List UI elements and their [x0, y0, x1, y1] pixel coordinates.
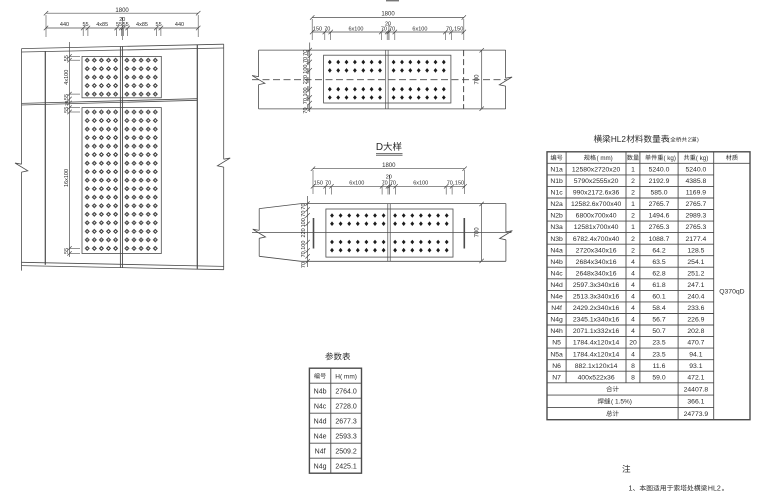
svg-text:2765.7: 2765.7: [649, 201, 670, 208]
svg-text:2: 2: [631, 213, 635, 220]
svg-text:4x85: 4x85: [96, 22, 108, 28]
svg-text:4: 4: [631, 282, 635, 289]
svg-text:2765.3: 2765.3: [649, 224, 670, 231]
svg-text:2728.0: 2728.0: [335, 403, 357, 410]
svg-text:55: 55: [64, 94, 70, 100]
svg-text:(: (: [668, 138, 670, 144]
svg-text:4: 4: [631, 270, 635, 277]
svg-text:20: 20: [386, 175, 392, 181]
svg-text:N3a: N3a: [550, 224, 563, 231]
svg-text:61.8: 61.8: [652, 282, 665, 289]
svg-text:1: 1: [631, 167, 635, 174]
svg-text:11.6: 11.6: [653, 363, 666, 370]
svg-text:1800: 1800: [381, 12, 395, 18]
svg-text:20: 20: [629, 340, 637, 347]
svg-text:N1c: N1c: [551, 190, 564, 197]
svg-text:58.4: 58.4: [652, 305, 665, 312]
svg-text:70: 70: [389, 27, 395, 33]
svg-text:233.6: 233.6: [687, 305, 704, 312]
svg-text:HL2: HL2: [611, 135, 626, 144]
svg-text:2: 2: [688, 138, 691, 144]
svg-text:55: 55: [82, 22, 88, 28]
svg-text:12581x700x40: 12581x700x40: [574, 224, 619, 231]
svg-text:6x100: 6x100: [413, 181, 428, 187]
svg-text:700: 700: [475, 74, 481, 85]
svg-text:2192.9: 2192.9: [649, 178, 670, 185]
svg-text:N4b: N4b: [550, 259, 563, 266]
svg-text:59.0: 59.0: [652, 374, 665, 381]
svg-text:150: 150: [455, 181, 464, 187]
svg-text:50.7: 50.7: [652, 328, 665, 335]
svg-text:N4b: N4b: [314, 388, 327, 395]
svg-text:990x2172.6x36: 990x2172.6x36: [573, 190, 620, 197]
svg-text:Q370qD: Q370qD: [719, 289, 744, 296]
svg-text:2648x340x16: 2648x340x16: [576, 270, 617, 277]
svg-text:N1a: N1a: [550, 167, 563, 174]
svg-text:1: 1: [631, 201, 635, 208]
svg-text:366.1: 366.1: [687, 399, 704, 406]
svg-text:100,70: 100,70: [303, 57, 309, 74]
svg-text:2071.1x332x16: 2071.1x332x16: [573, 328, 620, 335]
svg-text:N4d: N4d: [550, 282, 563, 289]
svg-text:55: 55: [64, 55, 70, 61]
svg-text:55: 55: [123, 22, 129, 28]
svg-text:23.5: 23.5: [652, 351, 665, 358]
svg-text:16x100: 16x100: [64, 169, 70, 187]
svg-text:251.2: 251.2: [687, 270, 704, 277]
svg-text:2177.4: 2177.4: [686, 236, 707, 243]
svg-text:6x100: 6x100: [349, 27, 364, 33]
svg-text:400x522x36: 400x522x36: [578, 374, 615, 381]
svg-text:70: 70: [324, 27, 330, 33]
svg-text:128.5: 128.5: [687, 247, 704, 254]
svg-text:24773.9: 24773.9: [684, 411, 709, 418]
svg-text:HL2: HL2: [708, 486, 721, 493]
svg-text:55: 55: [116, 22, 122, 28]
svg-text:55: 55: [64, 248, 70, 254]
svg-text:64.2: 64.2: [652, 247, 665, 254]
svg-text:6800x700x40: 6800x700x40: [576, 213, 617, 220]
svg-text:2720x340x16: 2720x340x16: [576, 247, 617, 254]
svg-text:N5: N5: [552, 340, 561, 347]
svg-text:( mm): ( mm): [597, 155, 613, 162]
svg-text:8: 8: [631, 363, 635, 370]
svg-text:1784.4x120x14: 1784.4x120x14: [573, 351, 620, 358]
svg-text:70: 70: [325, 181, 331, 187]
svg-text:N4d: N4d: [314, 418, 327, 425]
svg-text:1: 1: [629, 484, 633, 493]
svg-text:1800: 1800: [115, 8, 129, 14]
svg-text:5240.0: 5240.0: [649, 167, 670, 174]
svg-text:2765.7: 2765.7: [686, 201, 707, 208]
svg-text:247.1: 247.1: [687, 282, 704, 289]
svg-text:4x85: 4x85: [136, 22, 148, 28]
svg-text:1169.9: 1169.9: [686, 190, 707, 197]
svg-text:882.1x120x14: 882.1x120x14: [575, 363, 618, 370]
svg-text:63.5: 63.5: [652, 259, 665, 266]
svg-text:70: 70: [301, 203, 307, 209]
svg-text:6x100: 6x100: [412, 27, 427, 33]
svg-text:700: 700: [474, 227, 480, 238]
svg-text:N7: N7: [552, 374, 561, 381]
svg-text:6x100: 6x100: [349, 181, 364, 187]
svg-text:2: 2: [631, 247, 635, 254]
svg-text:100,70: 100,70: [301, 211, 307, 228]
svg-text:20: 20: [119, 17, 125, 23]
svg-text:2: 2: [631, 236, 635, 243]
svg-text:N3b: N3b: [550, 236, 563, 243]
svg-text:93.1: 93.1: [689, 363, 702, 370]
svg-text:2684x340x16: 2684x340x16: [576, 259, 617, 266]
svg-text:472.1: 472.1: [687, 374, 704, 381]
svg-text:220: 220: [301, 228, 307, 237]
svg-text:4: 4: [631, 259, 635, 266]
svg-text:440: 440: [60, 22, 69, 28]
svg-text:20: 20: [385, 21, 391, 27]
svg-text:254.1: 254.1: [687, 259, 704, 266]
svg-text:N4g: N4g: [550, 317, 563, 324]
svg-text:55: 55: [64, 107, 70, 113]
svg-text:150: 150: [314, 181, 323, 187]
svg-text:D: D: [376, 142, 383, 153]
svg-text:70: 70: [382, 181, 388, 187]
svg-text:2429.2x340x16: 2429.2x340x16: [573, 305, 620, 312]
svg-text:N4a: N4a: [550, 247, 563, 254]
svg-text:2989.3: 2989.3: [686, 213, 707, 220]
svg-text:6782.4x700x40: 6782.4x700x40: [573, 236, 620, 243]
svg-text:1784.4x120x14: 1784.4x120x14: [573, 340, 620, 347]
svg-text:240.4: 240.4: [687, 294, 704, 301]
svg-text:70: 70: [390, 181, 396, 187]
svg-text:N4h: N4h: [550, 328, 563, 335]
svg-text:70: 70: [381, 27, 387, 33]
svg-text:4x100: 4x100: [64, 70, 70, 85]
svg-text:1494.6: 1494.6: [649, 213, 670, 220]
svg-text:94.1: 94.1: [689, 351, 702, 358]
svg-text:56.7: 56.7: [652, 317, 665, 324]
svg-text:N4f: N4f: [551, 305, 562, 312]
svg-text:20: 20: [64, 100, 69, 106]
svg-text:2: 2: [631, 178, 635, 185]
svg-text:55: 55: [156, 22, 162, 28]
svg-text:2765.3: 2765.3: [686, 224, 707, 231]
svg-text:): ): [697, 138, 699, 144]
svg-text:8: 8: [631, 374, 635, 381]
svg-text:N5a: N5a: [550, 351, 563, 358]
svg-text:150: 150: [454, 27, 463, 33]
svg-text:202.8: 202.8: [687, 328, 704, 335]
svg-text:4: 4: [631, 317, 635, 324]
svg-text:12580x2720x20: 12580x2720x20: [572, 167, 621, 174]
svg-text:220: 220: [303, 75, 309, 84]
svg-text:N4e: N4e: [550, 294, 563, 301]
svg-text:60.1: 60.1: [652, 294, 665, 301]
svg-text:2513.3x340x16: 2513.3x340x16: [573, 294, 620, 301]
svg-text:( 1.5%): ( 1.5%): [611, 399, 632, 406]
svg-text:70: 70: [303, 50, 309, 56]
svg-text:2509.2: 2509.2: [335, 448, 357, 455]
svg-text:585.0: 585.0: [650, 190, 667, 197]
svg-text:H( mm): H( mm): [335, 373, 357, 380]
svg-text:440: 440: [175, 22, 184, 28]
svg-text:1: 1: [631, 224, 635, 231]
svg-text:70: 70: [301, 262, 307, 268]
svg-text:4: 4: [631, 305, 635, 312]
svg-text:150: 150: [313, 27, 322, 33]
svg-text:N6: N6: [552, 363, 561, 370]
svg-text:5240.0: 5240.0: [686, 167, 707, 174]
svg-text:1088.7: 1088.7: [649, 236, 670, 243]
svg-text:62.8: 62.8: [652, 270, 665, 277]
svg-text:( kg): ( kg): [696, 155, 708, 162]
svg-text:12582.6x700x40: 12582.6x700x40: [571, 201, 621, 208]
svg-text:70,100: 70,100: [303, 87, 309, 104]
svg-text:5790x2555x20: 5790x2555x20: [574, 178, 619, 185]
svg-text:2425.1: 2425.1: [335, 463, 357, 470]
svg-text:4: 4: [631, 294, 635, 301]
svg-text:4: 4: [631, 351, 635, 358]
svg-text:N4f: N4f: [315, 448, 326, 455]
svg-text:4: 4: [631, 328, 635, 335]
svg-text:2: 2: [631, 190, 635, 197]
svg-text:N1b: N1b: [550, 178, 563, 185]
svg-text:2677.3: 2677.3: [335, 418, 357, 425]
svg-text:N4c: N4c: [314, 403, 327, 410]
svg-text:N2a: N2a: [550, 201, 563, 208]
svg-text:N4c: N4c: [551, 270, 564, 277]
svg-text:2597.3x340x16: 2597.3x340x16: [573, 282, 620, 289]
svg-text:70: 70: [447, 181, 453, 187]
svg-text:226.9: 226.9: [687, 317, 704, 324]
svg-text:2345.1x340x16: 2345.1x340x16: [573, 317, 620, 324]
svg-text:23.5: 23.5: [652, 340, 665, 347]
svg-text:4385.8: 4385.8: [686, 178, 707, 185]
svg-text:N4g: N4g: [314, 463, 327, 470]
svg-text:N2b: N2b: [550, 213, 563, 220]
svg-text:( kg): ( kg): [664, 155, 676, 162]
svg-text:1800: 1800: [382, 163, 396, 169]
svg-text:2593.3: 2593.3: [335, 433, 357, 440]
svg-text:2764.0: 2764.0: [335, 388, 357, 395]
svg-text:70: 70: [303, 107, 309, 113]
svg-text:24407.8: 24407.8: [684, 386, 709, 393]
svg-text:70,100: 70,100: [301, 241, 307, 258]
svg-text:N4e: N4e: [314, 433, 327, 440]
svg-text:470.7: 470.7: [687, 340, 704, 347]
svg-text:70: 70: [446, 27, 452, 33]
